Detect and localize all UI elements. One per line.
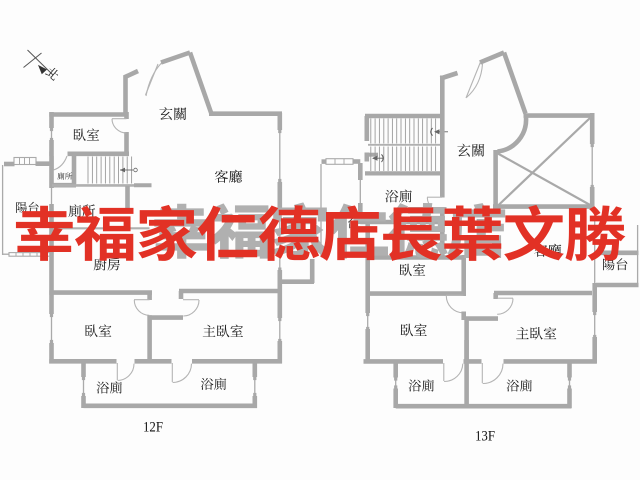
svg-text:12F: 12F xyxy=(143,420,163,436)
svg-text:13F: 13F xyxy=(475,429,495,445)
